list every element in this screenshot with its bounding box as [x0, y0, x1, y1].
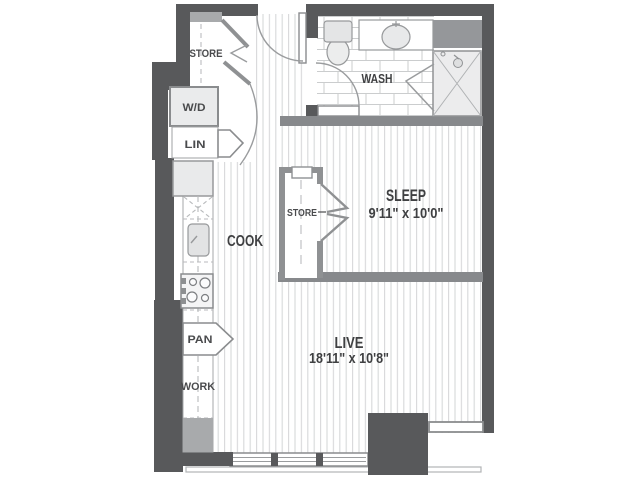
sleep-dimensions: 9'11" x 10'0" — [369, 206, 444, 222]
wall-top-right — [306, 4, 494, 16]
cook-label: COOK — [227, 233, 263, 250]
toilet-tank — [324, 21, 352, 42]
stove-knob — [181, 288, 186, 294]
entry-store-label: STORE — [190, 48, 223, 60]
shower-head-icon — [454, 59, 463, 68]
burner — [187, 292, 197, 302]
live-dimensions: 18'11" x 10'8" — [309, 351, 389, 367]
stove-knob — [181, 298, 186, 304]
refrigerator — [173, 161, 213, 196]
window-frame — [230, 453, 368, 466]
wall-bathroom-sleep-divider — [280, 116, 483, 126]
window-mullion — [316, 453, 323, 466]
burner — [202, 295, 209, 302]
window-right — [429, 422, 483, 432]
linen-label: LIN — [185, 139, 206, 151]
wash-label: WASH — [362, 72, 393, 86]
bathroom-door-leaf — [318, 106, 359, 116]
toilet-bowl — [327, 39, 349, 65]
entry-door-leaf — [299, 13, 306, 63]
live-label: LIVE — [335, 335, 364, 352]
sleep-label: SLEEP — [386, 186, 426, 205]
stove-knob — [181, 278, 186, 284]
pantry-label: PAN — [188, 334, 213, 346]
floorplan-canvas: WASH STORE W/D LIN — [0, 0, 640, 480]
window-wall — [230, 453, 368, 466]
vanity — [359, 20, 433, 50]
burner — [190, 279, 197, 286]
column — [368, 413, 428, 475]
bathroom-wall-left-upper — [306, 14, 318, 38]
shower — [433, 51, 481, 116]
wd-label: W/D — [183, 102, 206, 114]
window-mullion — [271, 453, 278, 466]
base-cabinet — [183, 418, 213, 452]
closet-wall-right-bottom — [317, 241, 323, 278]
bathroom-sink — [382, 25, 410, 49]
closet-shelf — [190, 12, 222, 22]
wall-left-kitchen — [155, 158, 174, 302]
closet-wall-right-top — [317, 167, 323, 184]
wall-left-upper — [176, 4, 190, 72]
work-label: WORK — [181, 381, 215, 393]
exterior-corner-mask — [428, 433, 484, 458]
closet-wall-left — [279, 167, 285, 280]
bedroom-store-label: STORE — [287, 208, 317, 219]
floorplan-svg: WASH STORE W/D LIN — [0, 0, 640, 480]
wall-bottom-left — [154, 452, 233, 466]
wall-left-lower — [154, 300, 183, 472]
kitchen-sink — [188, 224, 209, 256]
wall-left-mid — [152, 62, 168, 160]
stove — [181, 274, 213, 308]
burner — [200, 278, 210, 288]
balcony-edge — [186, 467, 481, 472]
wall-right — [482, 4, 494, 433]
linen-closet: LIN — [172, 127, 243, 158]
closet-notch — [292, 167, 312, 178]
utility-shaft — [433, 20, 482, 48]
